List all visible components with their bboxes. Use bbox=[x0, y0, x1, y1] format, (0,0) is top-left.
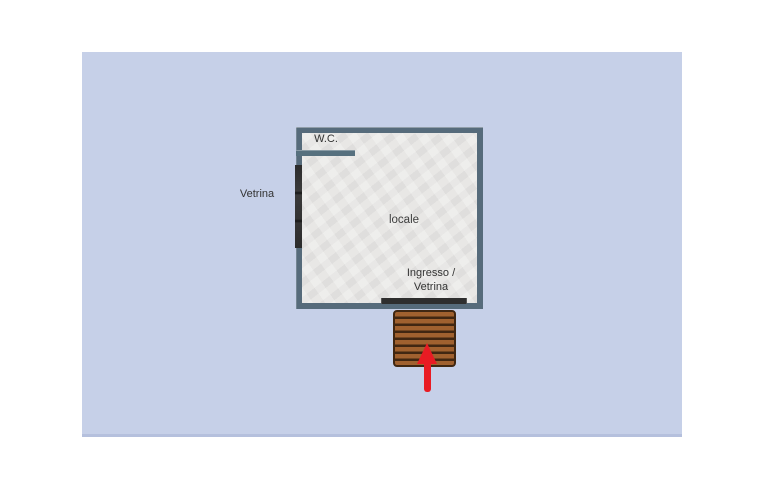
entrance-label-line1: Ingresso / bbox=[407, 267, 455, 279]
entrance-label: Ingresso /Vetrina bbox=[391, 266, 471, 294]
wc-label: W.C. bbox=[306, 132, 346, 146]
room-label: locale bbox=[374, 213, 434, 227]
entrance-arrow-shaft bbox=[424, 362, 431, 392]
shop-window-strip-left bbox=[295, 165, 302, 248]
entrance-label-line2: Vetrina bbox=[414, 281, 448, 293]
entrance-arrow-head bbox=[417, 343, 437, 364]
floor-plan-page: W.C. Vetrina locale Ingresso /Vetrina bbox=[0, 0, 764, 492]
wc-partition-wall bbox=[296, 150, 355, 156]
shop-window-label: Vetrina bbox=[222, 187, 292, 201]
entrance-window-strip bbox=[381, 298, 467, 304]
